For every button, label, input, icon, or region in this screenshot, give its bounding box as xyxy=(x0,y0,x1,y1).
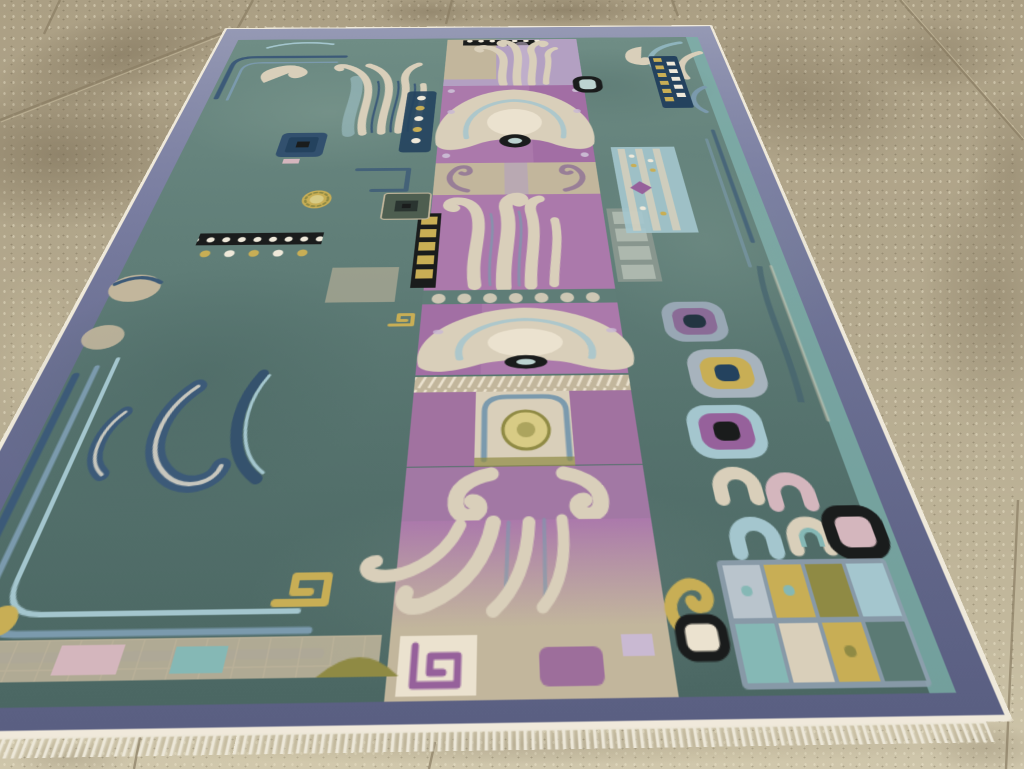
sweeping-plume-panel xyxy=(359,518,668,629)
pink-accent xyxy=(282,159,300,164)
fan-medallion-1 xyxy=(433,85,599,163)
wave-scroll-band xyxy=(433,162,601,195)
hatch-band xyxy=(414,375,631,393)
arch-panel xyxy=(407,390,643,468)
photo-scene xyxy=(0,0,1024,769)
olive-block xyxy=(381,193,432,219)
scallop-dot-band xyxy=(422,289,617,305)
black-ring-motif xyxy=(575,78,600,91)
black-d-ring xyxy=(678,619,728,657)
c-scroll-pair xyxy=(401,465,651,522)
fan-medallion-2 xyxy=(415,302,636,375)
magenta-blob xyxy=(539,646,606,686)
black-ring-pink-center xyxy=(824,511,888,554)
column-bottom-strip xyxy=(384,625,679,702)
